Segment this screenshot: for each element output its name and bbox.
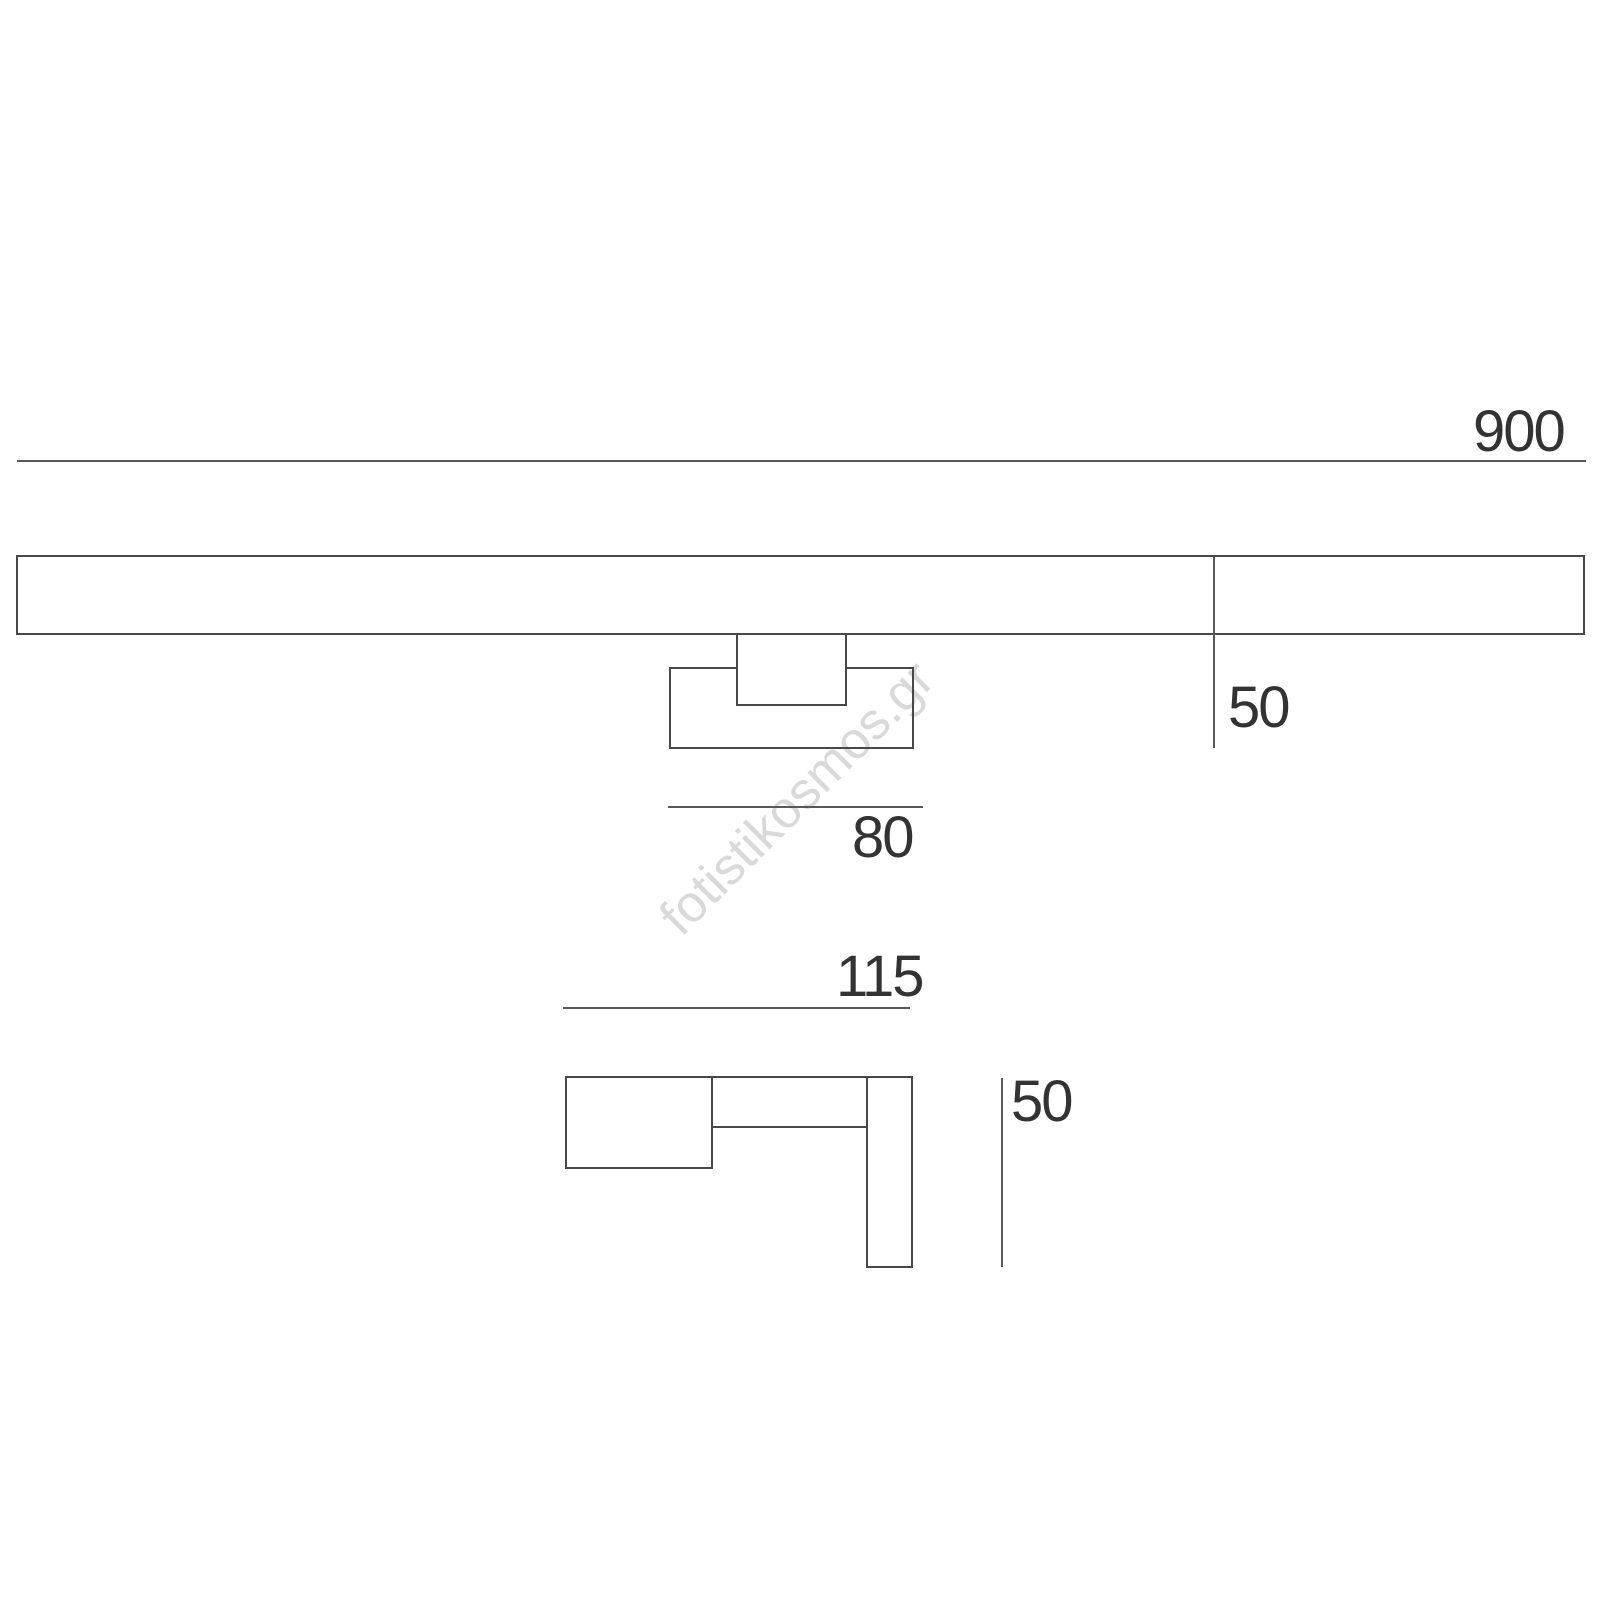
- lamp-arm-side-view: [713, 1076, 868, 1128]
- lamp-head-side-view: [866, 1076, 913, 1268]
- dim-line-head-height: [1001, 1078, 1003, 1267]
- dim-line-side-depth: [563, 1007, 910, 1009]
- technical-drawing-canvas: fotistikosmos.gr 900 50 80 115 50: [0, 0, 1600, 1600]
- dim-label-bar-height: 50: [1228, 679, 1289, 737]
- dim-label-overall-width: 900: [1473, 403, 1564, 461]
- lamp-bar-front-view: [16, 555, 1585, 635]
- mount-stem-front-view: [736, 635, 847, 706]
- dim-label-head-height: 50: [1011, 1073, 1072, 1131]
- mount-bracket-side-view: [565, 1076, 713, 1169]
- dim-label-side-depth: 115: [836, 948, 922, 1006]
- dim-label-bracket-width: 80: [852, 809, 913, 867]
- bar-height-extension-line: [1213, 557, 1215, 748]
- dim-line-overall-width: [17, 460, 1586, 462]
